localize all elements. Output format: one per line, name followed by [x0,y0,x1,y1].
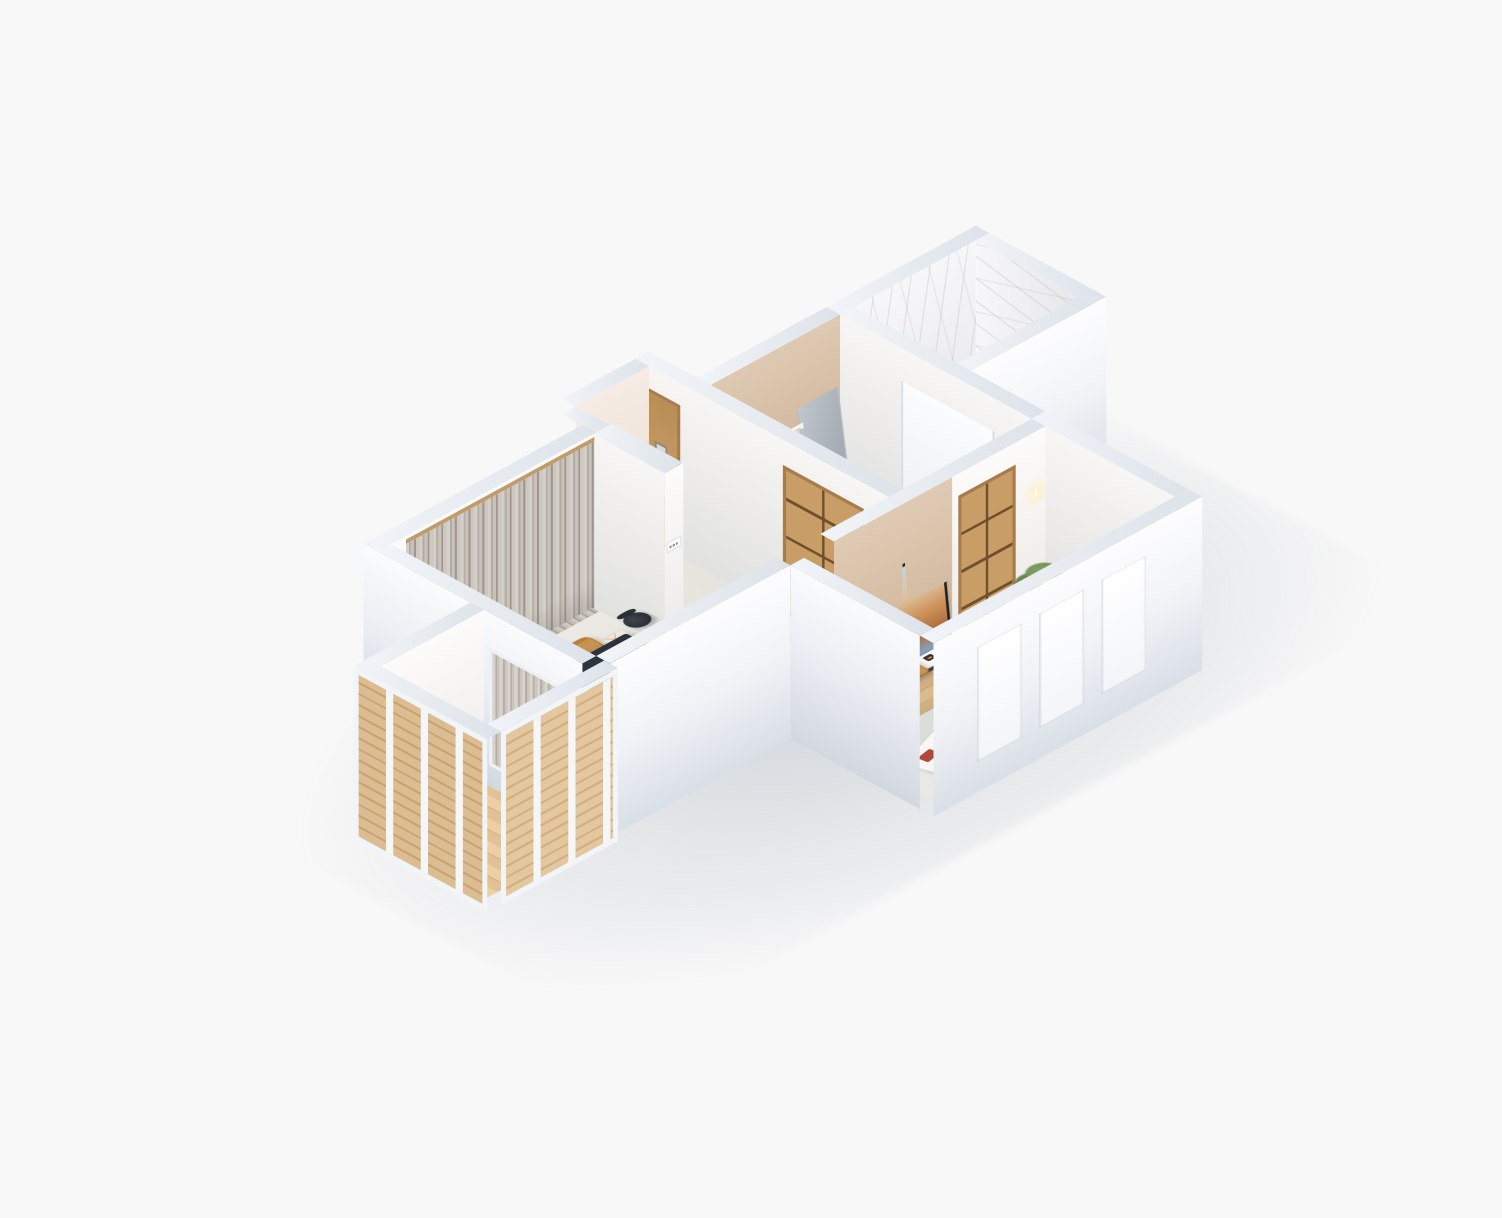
apartment-plan [391,399,1324,907]
facade-window-3 [1101,555,1146,694]
wall-plaque [667,535,682,554]
floorplan-render-stage [0,0,1502,1218]
facade-window-2 [1039,589,1084,728]
facade-window-1 [977,623,1022,762]
